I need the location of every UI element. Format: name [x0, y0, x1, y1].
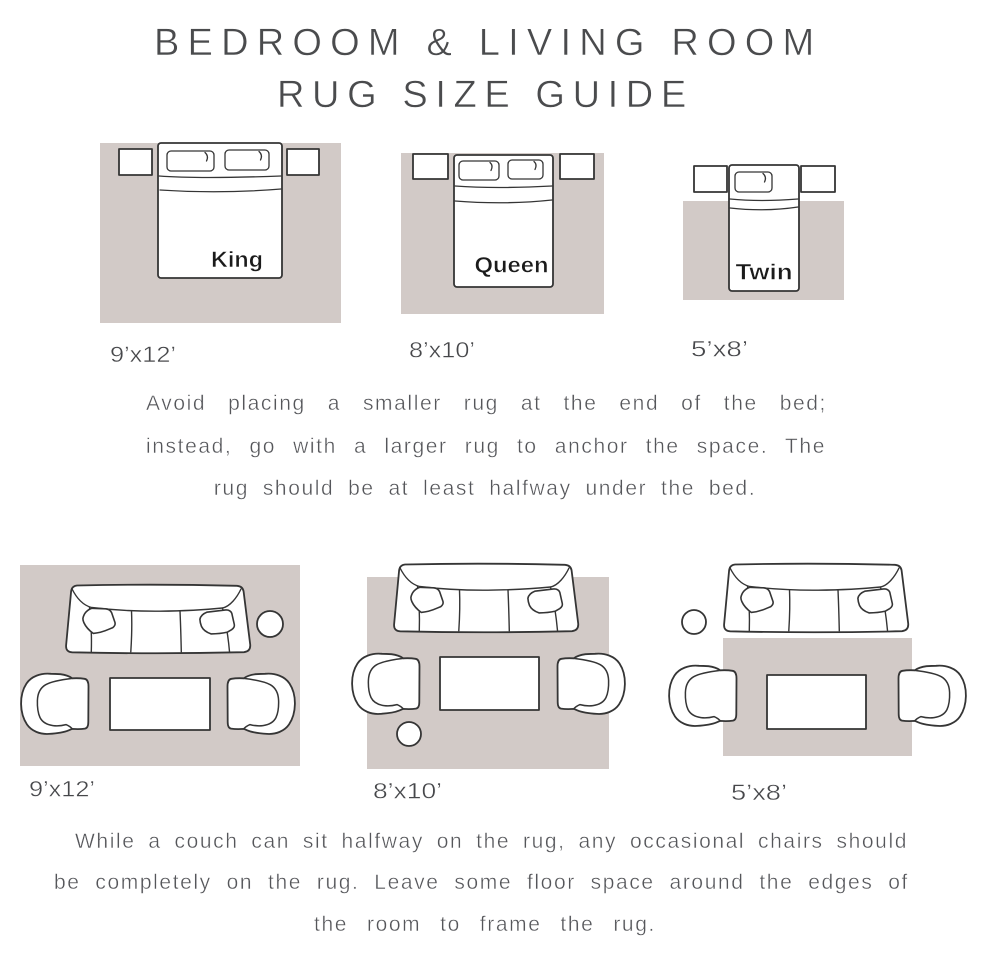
- svg-text:8’x10’: 8’x10’: [373, 779, 442, 804]
- svg-text:9’x12’: 9’x12’: [110, 342, 176, 367]
- svg-text:9’x12’: 9’x12’: [29, 777, 95, 802]
- svg-text:King: King: [211, 247, 263, 272]
- svg-text:8’x10’: 8’x10’: [409, 338, 475, 363]
- svg-text:Queen: Queen: [475, 253, 549, 278]
- svg-text:5’x8’: 5’x8’: [691, 337, 748, 362]
- svg-text:Twin: Twin: [736, 260, 793, 285]
- svg-text:5’x8’: 5’x8’: [731, 780, 787, 805]
